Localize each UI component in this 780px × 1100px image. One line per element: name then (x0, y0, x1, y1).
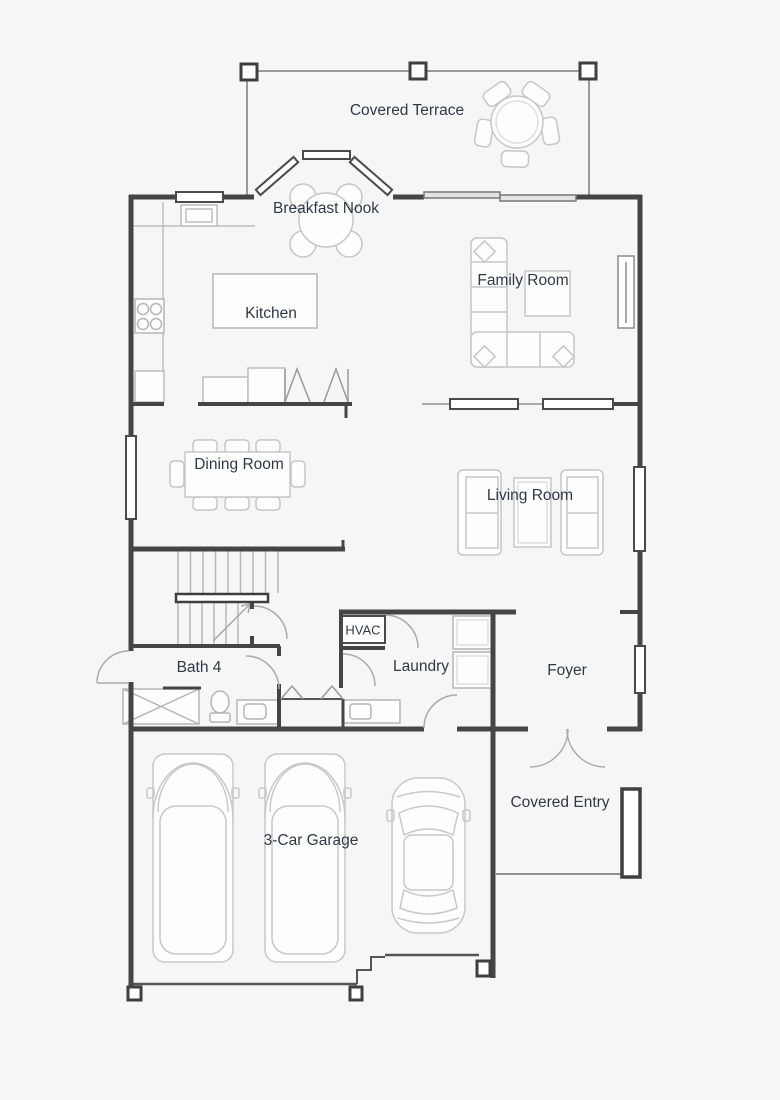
garage-post-right (477, 961, 490, 976)
garage-entry-door-arc (424, 695, 457, 728)
garage-car-1 (147, 754, 239, 962)
laundry-label: Laundry (393, 658, 449, 676)
living-room-label: Living Room (487, 487, 573, 505)
stairs-handrail (176, 594, 268, 602)
bath-vanity-sink (237, 700, 278, 724)
breakfast-nook-table (290, 184, 362, 257)
family-living-window-2 (543, 399, 613, 409)
family-room-label: Family Room (477, 272, 568, 290)
family-living-window-1 (450, 399, 518, 409)
dining-room-label: Dining Room (194, 456, 284, 474)
foyer-window (635, 646, 645, 693)
dining-window (126, 436, 136, 519)
garage-post-left (128, 987, 141, 1000)
terrace-post-left (241, 64, 257, 80)
bath-door-arc (246, 656, 279, 689)
garage-car-3 (387, 778, 470, 933)
family-room-window (618, 256, 634, 328)
side-exterior-door-arc (97, 651, 129, 683)
front-door-right-arc (567, 729, 605, 767)
hvac-label: HVAC (345, 623, 380, 638)
living-room-window (634, 467, 645, 551)
bath-shower (123, 689, 199, 724)
floor-plan-drawing (0, 0, 780, 1100)
bath-4-label: Bath 4 (177, 659, 222, 677)
stairs-direction-arrow (213, 604, 250, 641)
laundry-door-arc (343, 654, 375, 686)
covered-entry-label: Covered Entry (510, 794, 609, 812)
dining-set (170, 440, 305, 510)
garage-post-middle (350, 987, 362, 1000)
foyer-label: Foyer (547, 662, 587, 680)
floor-plan: Covered Terrace Breakfast Nook Kitchen F… (0, 0, 780, 1100)
covered-terrace-label: Covered Terrace (350, 102, 464, 120)
front-door-left-arc (530, 729, 568, 767)
kitchen-window (176, 192, 223, 202)
terrace-post-right (580, 63, 596, 79)
terrace-dining-set (474, 80, 560, 168)
kitchen-label: Kitchen (245, 305, 297, 323)
stair-landing-door-arc (254, 606, 287, 639)
breakfast-nook-label: Breakfast Nook (273, 200, 379, 218)
pantry-bifold-doors (285, 369, 348, 402)
terrace-post-middle (410, 63, 426, 79)
garage-car-2 (259, 754, 351, 962)
cooktop (135, 299, 164, 333)
hvac-door-arc (385, 615, 418, 648)
washer-dryer (453, 616, 492, 688)
laundry-sink (343, 700, 400, 723)
garage-label: 3-Car Garage (264, 832, 359, 850)
bath-toilet (210, 691, 230, 722)
sliding-glass-door (424, 192, 576, 201)
entry-column (622, 789, 640, 877)
closet-bifold-doors (280, 686, 343, 699)
bay-windows (256, 151, 392, 195)
